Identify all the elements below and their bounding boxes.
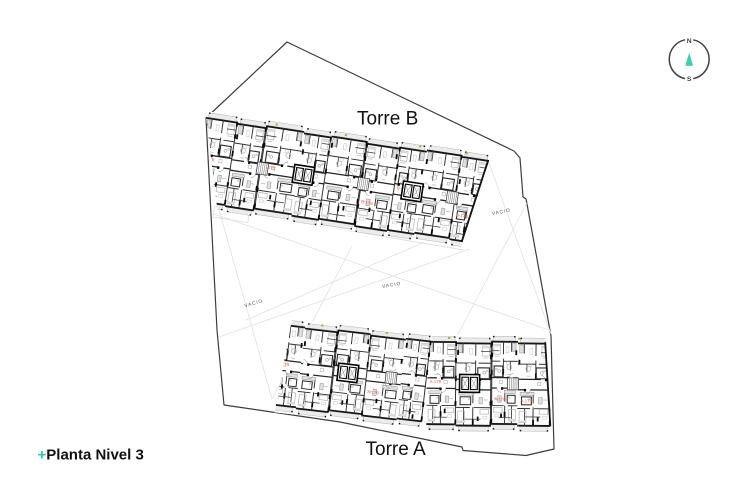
svg-text:S: S	[687, 76, 692, 83]
svg-text:A-17B: A-17B	[521, 398, 533, 403]
svg-text:Torre A: Torre A	[366, 439, 427, 460]
svg-text:N: N	[687, 38, 692, 45]
svg-text:A-17B: A-17B	[430, 379, 442, 384]
svg-text:+Planta Nivel 3: +Planta Nivel 3	[38, 447, 144, 464]
svg-text:A-17B: A-17B	[494, 397, 506, 402]
svg-text:Torre B: Torre B	[357, 109, 418, 130]
